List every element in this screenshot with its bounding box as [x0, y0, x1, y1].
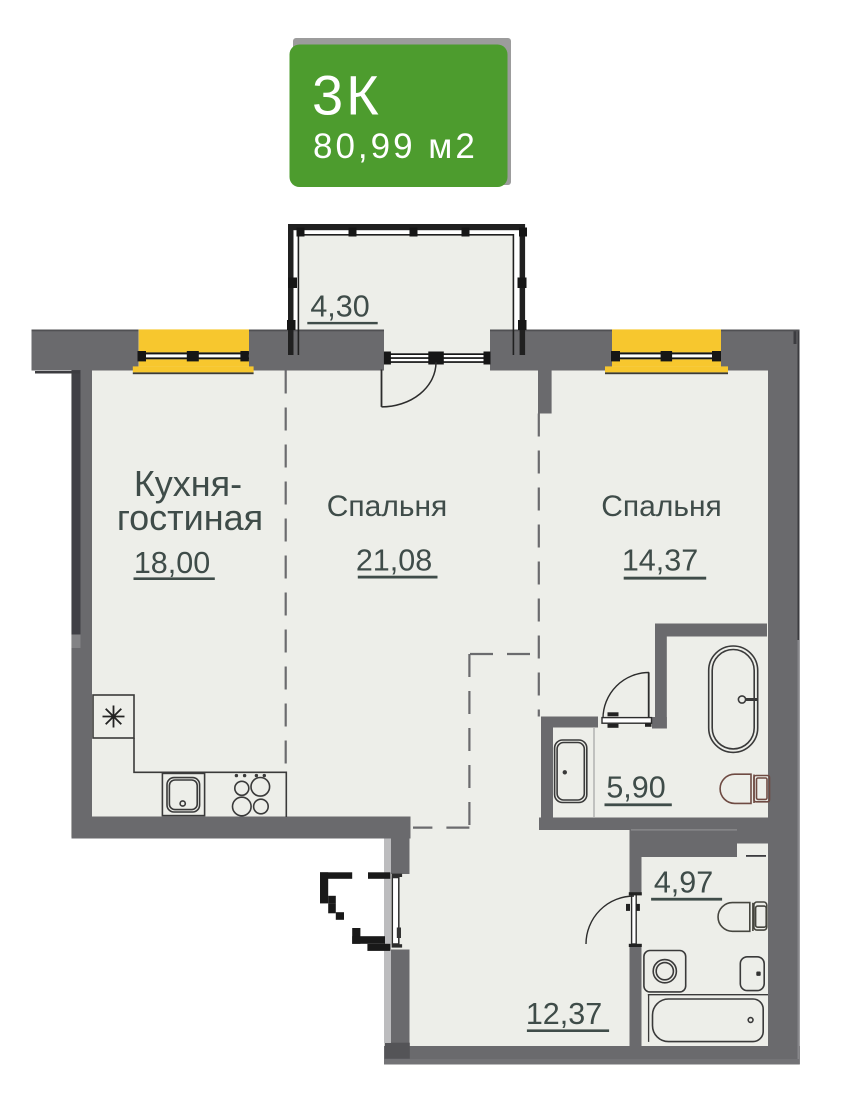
svg-text:21,08: 21,08 — [356, 544, 432, 578]
svg-text:4,30: 4,30 — [310, 290, 369, 324]
svg-text:4,97: 4,97 — [654, 866, 713, 900]
svg-text:14,37: 14,37 — [622, 544, 698, 578]
svg-text:Спальня: Спальня — [327, 490, 448, 523]
svg-text:3К: 3К — [312, 64, 382, 127]
svg-text:80,99 м2: 80,99 м2 — [313, 127, 478, 166]
svg-text:гостиная: гостиная — [117, 497, 263, 538]
svg-text:5,90: 5,90 — [606, 771, 665, 805]
svg-text:12,37: 12,37 — [526, 997, 602, 1031]
svg-text:Спальня: Спальня — [601, 490, 722, 523]
svg-text:18,00: 18,00 — [134, 546, 210, 580]
